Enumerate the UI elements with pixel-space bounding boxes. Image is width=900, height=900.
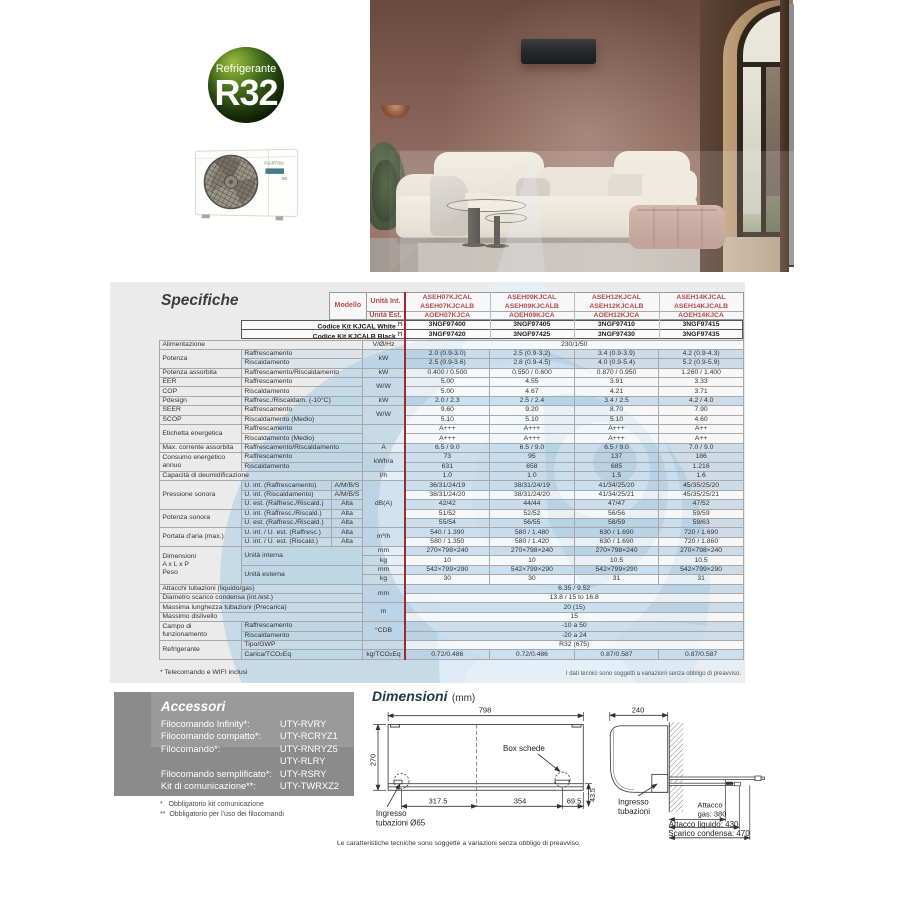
svg-text:43.5: 43.5 bbox=[590, 788, 597, 802]
svg-text:gas: 380: gas: 380 bbox=[698, 810, 727, 819]
svg-text:Box schede: Box schede bbox=[503, 744, 545, 753]
svg-text:Attacco: Attacco bbox=[697, 801, 722, 810]
svg-text:tubazioni Ø65: tubazioni Ø65 bbox=[376, 819, 426, 828]
svg-text:270: 270 bbox=[370, 754, 378, 767]
svg-text:FUJITSU: FUJITSU bbox=[264, 161, 284, 166]
svg-text:240: 240 bbox=[632, 706, 645, 715]
svg-text:798: 798 bbox=[479, 706, 492, 715]
svg-text:tubazioni: tubazioni bbox=[618, 807, 650, 816]
svg-text:69.5: 69.5 bbox=[567, 797, 582, 806]
svg-text:Ingresso: Ingresso bbox=[376, 809, 407, 818]
svg-text:317.5: 317.5 bbox=[429, 797, 448, 806]
svg-text:Scarico condensa: 470: Scarico condensa: 470 bbox=[668, 829, 750, 838]
svg-text:Ingresso: Ingresso bbox=[618, 798, 649, 807]
svg-text:354: 354 bbox=[514, 797, 527, 806]
